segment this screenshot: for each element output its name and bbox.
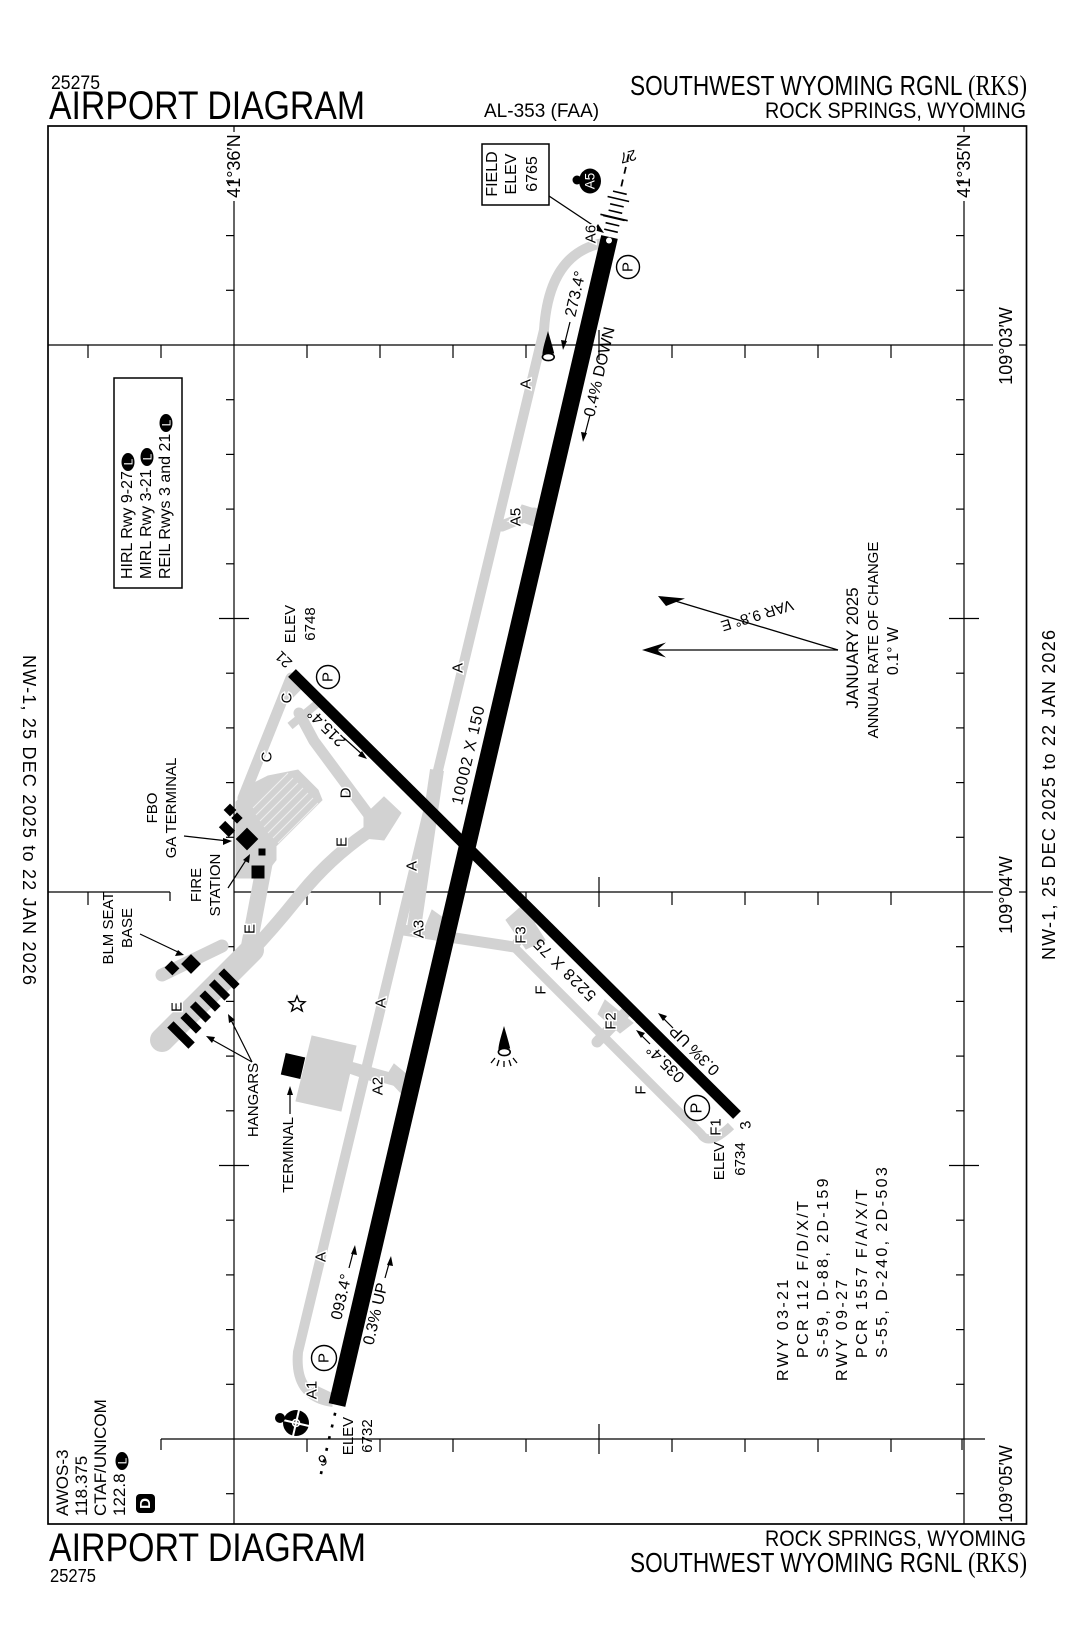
svg-text:MIRL Rwy 3-21: MIRL Rwy 3-21	[138, 469, 155, 579]
svg-text:C: C	[259, 751, 276, 762]
svg-text:A5: A5	[583, 173, 598, 190]
svg-text:L: L	[141, 453, 155, 460]
svg-text:NW-1, 25 DEC 2025 to 22 JAN: NW-1, 25 DEC 2025 to 22 JAN 2026	[19, 655, 39, 985]
svg-text:RWY 09-27: RWY 09-27	[834, 1277, 851, 1381]
svg-text:D: D	[137, 1498, 154, 1509]
svg-text:HANGARS: HANGARS	[245, 1063, 262, 1137]
svg-text:F1: F1	[708, 1118, 725, 1136]
svg-text:6734: 6734	[732, 1142, 749, 1175]
svg-text:P: P	[620, 262, 637, 272]
svg-text:41°36′N: 41°36′N	[224, 134, 244, 198]
svg-text:ANNUAL RATE OF CHANGE: ANNUAL RATE OF CHANGE	[865, 542, 882, 739]
svg-text:A: A	[518, 379, 535, 389]
svg-text:SOUTHWEST WYOMING RGNL (RKS): SOUTHWEST WYOMING RGNL (RKS)	[630, 1547, 1027, 1579]
svg-text:F: F	[533, 985, 550, 994]
svg-text:P: P	[316, 1353, 333, 1363]
svg-text:STATION: STATION	[207, 854, 224, 917]
svg-text:6765: 6765	[524, 156, 541, 192]
svg-text:25275: 25275	[50, 1566, 96, 1586]
svg-text:F2: F2	[603, 1012, 620, 1030]
svg-text:ELEV: ELEV	[503, 153, 520, 194]
svg-text:6748: 6748	[302, 607, 319, 640]
svg-text:REIL Rwys 3 and 21: REIL Rwys 3 and 21	[157, 434, 174, 579]
svg-text:L: L	[122, 458, 136, 465]
svg-text:109°04′W: 109°04′W	[996, 856, 1016, 934]
svg-text:AIRPORT DIAGRAM: AIRPORT DIAGRAM	[49, 84, 365, 128]
svg-text:BASE: BASE	[119, 908, 136, 948]
svg-text:TERMINAL: TERMINAL	[280, 1117, 297, 1193]
svg-text:PCR 112 F/D/X/T: PCR 112 F/D/X/T	[795, 1199, 812, 1358]
svg-text:D: D	[338, 787, 355, 798]
svg-text:AWOS-3: AWOS-3	[53, 1450, 72, 1516]
svg-text:41°35′N: 41°35′N	[954, 134, 974, 198]
svg-text:L: L	[160, 419, 174, 426]
svg-text:RWY 03-21: RWY 03-21	[775, 1277, 792, 1381]
svg-text:E: E	[242, 924, 259, 934]
svg-text:P: P	[320, 672, 337, 682]
svg-text:FBO: FBO	[144, 793, 161, 824]
svg-text:A: A	[450, 663, 467, 673]
svg-text:HIRL Rwy 9-27: HIRL Rwy 9-27	[119, 471, 136, 579]
svg-text:L: L	[116, 1457, 130, 1464]
svg-text:GA TERMINAL: GA TERMINAL	[163, 758, 180, 859]
svg-text:ROCK SPRINGS, WYOMING: ROCK SPRINGS, WYOMING	[765, 98, 1026, 123]
svg-text:109°05′W: 109°05′W	[996, 1445, 1016, 1523]
svg-text:A6: A6	[583, 225, 600, 243]
svg-text:0.1° W: 0.1° W	[885, 626, 902, 675]
svg-text:A2: A2	[370, 1077, 387, 1095]
svg-text:A: A	[313, 1252, 330, 1262]
svg-text:ELEV: ELEV	[711, 1142, 728, 1180]
svg-text:BLM SEAT: BLM SEAT	[100, 891, 117, 964]
svg-text:AL-353 (FAA): AL-353 (FAA)	[484, 101, 599, 122]
svg-text:P: P	[689, 1103, 706, 1114]
svg-text:118.375: 118.375	[72, 1456, 91, 1516]
svg-text:ELEV: ELEV	[340, 1417, 357, 1455]
svg-text:JANUARY 2025: JANUARY 2025	[843, 587, 862, 708]
svg-text:ELEV: ELEV	[282, 605, 299, 643]
svg-text:109°03′W: 109°03′W	[996, 307, 1016, 385]
svg-text:CTAF/UNICOM: CTAF/UNICOM	[91, 1399, 110, 1516]
svg-text:122.8: 122.8	[110, 1473, 129, 1516]
svg-text:C: C	[279, 692, 296, 703]
svg-text:PCR 1557 F/A/X/T: PCR 1557 F/A/X/T	[854, 1187, 871, 1358]
svg-text:S-59, D-88, 2D-159: S-59, D-88, 2D-159	[815, 1176, 832, 1358]
svg-text:E: E	[169, 1002, 186, 1012]
svg-text:S-55, D-240, 2D-503: S-55, D-240, 2D-503	[874, 1165, 891, 1358]
svg-text:A: A	[373, 998, 390, 1008]
svg-text:A1: A1	[304, 1381, 321, 1399]
svg-text:AIRPORT DIAGRAM: AIRPORT DIAGRAM	[49, 1526, 366, 1570]
svg-text:NW-1, 25 DEC 2025 to 22 JAN: NW-1, 25 DEC 2025 to 22 JAN 2026	[1039, 630, 1059, 960]
svg-text:A5: A5	[508, 508, 525, 526]
svg-text:E: E	[334, 837, 351, 847]
svg-text:6732: 6732	[359, 1419, 376, 1452]
svg-text:F: F	[633, 1085, 650, 1094]
svg-text:FIELD: FIELD	[484, 151, 501, 196]
svg-text:FIRE: FIRE	[188, 868, 205, 902]
svg-text:A3: A3	[411, 920, 428, 938]
svg-text:F3: F3	[513, 926, 530, 944]
svg-text:A: A	[404, 861, 421, 871]
